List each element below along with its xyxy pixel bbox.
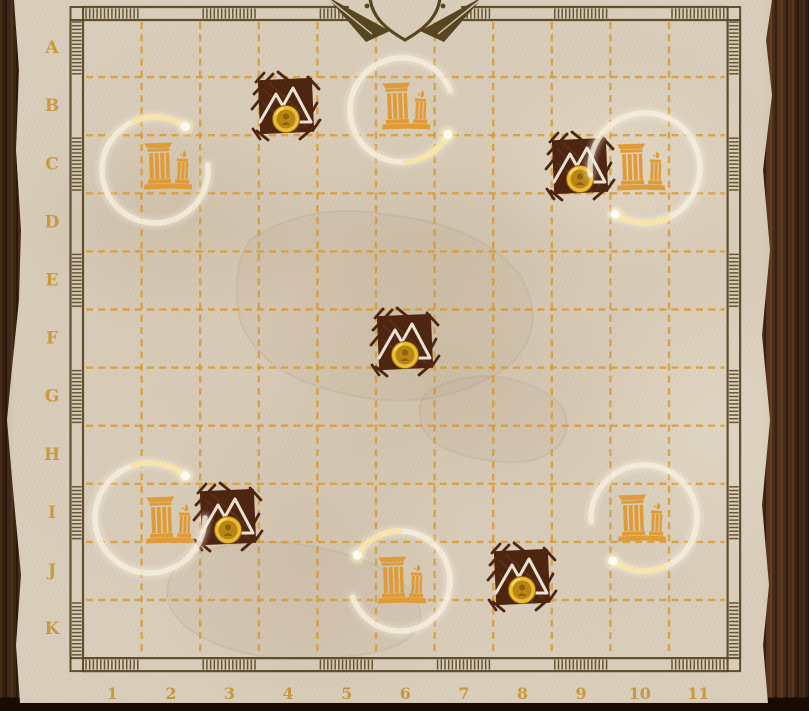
cell-H7[interactable]: [435, 426, 494, 484]
row-label-B: B: [45, 96, 59, 116]
cell-G6[interactable]: [376, 368, 435, 426]
cell-E5[interactable]: [317, 251, 376, 309]
row-label-J: J: [46, 561, 56, 581]
cell-A4[interactable]: [259, 19, 318, 77]
cell-F5[interactable]: [317, 310, 376, 368]
cell-E7[interactable]: [435, 251, 494, 309]
col-label-1: 1: [107, 684, 118, 703]
parchment-map: ABCDEFGHIJK1234567891011: [0, 0, 809, 711]
cell-I7[interactable]: [435, 484, 494, 542]
row-label-E: E: [46, 270, 59, 290]
col-label-2: 2: [165, 684, 176, 703]
row-label-A: A: [44, 38, 59, 58]
cell-E11[interactable]: [669, 251, 728, 309]
cell-D4[interactable]: [259, 193, 318, 251]
cell-E8[interactable]: [493, 251, 552, 309]
cell-B10[interactable]: [610, 77, 669, 135]
gold-coin-icon: [215, 517, 242, 544]
cell-F10[interactable]: [610, 310, 669, 368]
cell-A2[interactable]: [142, 19, 201, 77]
col-label-5: 5: [341, 684, 352, 703]
cell-J9[interactable]: [552, 542, 611, 600]
cell-F4[interactable]: [259, 310, 318, 368]
cell-C4[interactable]: [259, 135, 318, 193]
cell-K4[interactable]: [259, 600, 318, 658]
cell-G11[interactable]: [669, 368, 728, 426]
ring-cursor-dot: [353, 551, 362, 560]
cell-D11[interactable]: [669, 193, 728, 251]
cell-E10[interactable]: [610, 251, 669, 309]
board-canvas: ABCDEFGHIJK1234567891011: [0, 0, 809, 711]
cell-I5[interactable]: [317, 484, 376, 542]
cell-G8[interactable]: [493, 368, 552, 426]
cell-K11[interactable]: [669, 600, 728, 658]
cell-D5[interactable]: [317, 193, 376, 251]
cell-D9[interactable]: [552, 193, 611, 251]
cell-E1[interactable]: [83, 251, 142, 309]
col-label-9: 9: [576, 684, 587, 703]
treasure-map-board: ABCDEFGHIJK1234567891011: [0, 0, 809, 711]
cell-A1[interactable]: [83, 19, 142, 77]
cell-E3[interactable]: [200, 251, 259, 309]
cell-H5[interactable]: [317, 426, 376, 484]
cell-B3[interactable]: [200, 77, 259, 135]
cell-F2[interactable]: [142, 310, 201, 368]
cell-F8[interactable]: [493, 310, 552, 368]
cell-J11[interactable]: [669, 542, 728, 600]
cell-F7[interactable]: [435, 310, 494, 368]
cell-E6[interactable]: [376, 251, 435, 309]
cell-G5[interactable]: [317, 368, 376, 426]
cell-K5[interactable]: [317, 600, 376, 658]
cell-K3[interactable]: [200, 600, 259, 658]
cell-F3[interactable]: [200, 310, 259, 368]
cell-H4[interactable]: [259, 426, 318, 484]
cell-D6[interactable]: [376, 193, 435, 251]
gold-coin-icon: [509, 577, 536, 604]
col-label-4: 4: [283, 684, 294, 703]
cell-F11[interactable]: [669, 310, 728, 368]
cell-K9[interactable]: [552, 600, 611, 658]
cell-F9[interactable]: [552, 310, 611, 368]
cell-G7[interactable]: [435, 368, 494, 426]
cell-D8[interactable]: [493, 193, 552, 251]
col-label-7: 7: [458, 684, 469, 703]
row-label-K: K: [45, 619, 61, 639]
cell-A8[interactable]: [493, 19, 552, 77]
row-label-G: G: [45, 387, 60, 407]
ring-cursor-dot: [608, 556, 617, 565]
cell-A3[interactable]: [200, 19, 259, 77]
cell-E9[interactable]: [552, 251, 611, 309]
cell-G4[interactable]: [259, 368, 318, 426]
cell-F1[interactable]: [83, 310, 142, 368]
ring-cursor-dot: [443, 130, 452, 139]
cell-H3[interactable]: [200, 426, 259, 484]
cell-D7[interactable]: [435, 193, 494, 251]
col-label-6: 6: [400, 684, 411, 703]
row-label-F: F: [46, 329, 58, 349]
cell-G10[interactable]: [610, 368, 669, 426]
cell-A10[interactable]: [610, 19, 669, 77]
row-label-D: D: [45, 212, 60, 232]
cell-H8[interactable]: [493, 426, 552, 484]
row-label-H: H: [44, 445, 60, 465]
cell-G9[interactable]: [552, 368, 611, 426]
cell-K1[interactable]: [83, 600, 142, 658]
cell-K2[interactable]: [142, 600, 201, 658]
cell-H6[interactable]: [376, 426, 435, 484]
cell-G3[interactable]: [200, 368, 259, 426]
cell-J4[interactable]: [259, 542, 318, 600]
cell-G1[interactable]: [83, 368, 142, 426]
cell-I4[interactable]: [259, 484, 318, 542]
cell-G2[interactable]: [142, 368, 201, 426]
ring-cursor-dot: [611, 210, 620, 219]
ring-cursor-dot: [181, 122, 190, 131]
cell-A9[interactable]: [552, 19, 611, 77]
cell-H9[interactable]: [552, 426, 611, 484]
col-label-10: 10: [629, 684, 651, 703]
cell-E4[interactable]: [259, 251, 318, 309]
cell-K10[interactable]: [610, 600, 669, 658]
cell-I8[interactable]: [493, 484, 552, 542]
cell-E2[interactable]: [142, 251, 201, 309]
gold-coin-icon: [273, 106, 300, 133]
cell-A11[interactable]: [669, 19, 728, 77]
col-label-3: 3: [224, 684, 235, 703]
row-label-I: I: [48, 503, 56, 523]
gold-coin-icon: [392, 342, 419, 369]
row-label-C: C: [45, 154, 59, 174]
cell-C8[interactable]: [493, 135, 552, 193]
col-label-11: 11: [687, 684, 709, 703]
cell-B8[interactable]: [493, 77, 552, 135]
cell-D3[interactable]: [200, 193, 259, 251]
col-label-8: 8: [517, 684, 528, 703]
ring-cursor-dot: [181, 471, 190, 480]
